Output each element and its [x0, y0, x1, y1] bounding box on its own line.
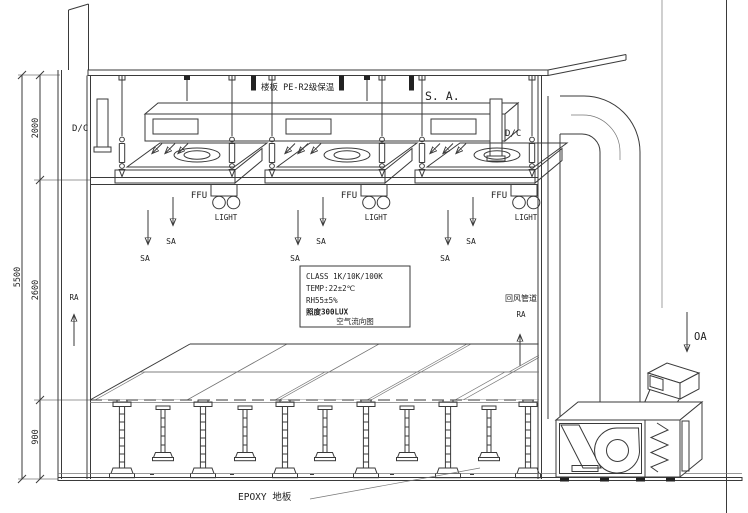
- return-air-right: 回风管道 RA: [505, 293, 537, 366]
- raised-floor: [90, 344, 597, 403]
- dc-label-right: D/C: [505, 129, 521, 139]
- light-label-3: LIGHT: [515, 213, 538, 222]
- spec-box: CLASS 1K/10K/100K TEMP:22±2℃ RH55±5% 照度3…: [300, 266, 410, 327]
- ffu-label-2: FFU: [341, 191, 357, 201]
- spec-line-lux: 照度300LUX: [306, 307, 349, 317]
- floor-pedestals: [110, 400, 541, 478]
- light-label-1: LIGHT: [215, 213, 238, 222]
- cleanroom-airflow-diagram: 5500 2000 2600 900 楼板 PE-R2级保温: [0, 0, 748, 513]
- ra-label-left: RA: [69, 293, 79, 302]
- dim-plenum-height: 2000: [31, 118, 41, 138]
- spec-line-rh: RH55±5%: [306, 296, 338, 305]
- sa-label-6: SA: [466, 237, 476, 246]
- return-shaft-and-elbow: [548, 96, 640, 419]
- supply-air-label: S. A.: [425, 89, 460, 103]
- sa-label-4: SA: [316, 237, 326, 246]
- dc-duct-left: D/C: [72, 99, 111, 152]
- cleanroom-airflow-diagram-page: 5500 2000 2600 900 楼板 PE-R2级保温: [0, 0, 748, 513]
- return-duct-label: 回风管道: [505, 293, 537, 303]
- sa-label-3: SA: [290, 254, 300, 263]
- ceiling-slab: 楼板 PE-R2级保温: [69, 4, 627, 93]
- light-label-2: LIGHT: [365, 213, 388, 222]
- supply-air-arrows: SA SA SA SA SA SA: [140, 197, 476, 263]
- return-air-left: RA: [69, 293, 79, 346]
- airflow-caption: 空气流向图: [336, 316, 374, 326]
- spec-line-temp: TEMP:22±2℃: [306, 284, 356, 293]
- sa-label-2: SA: [166, 237, 176, 246]
- ffu-label-1: FFU: [191, 191, 207, 201]
- sa-label-5: SA: [440, 254, 450, 263]
- ahu-unit: [556, 402, 702, 482]
- dim-room-height: 2600: [31, 280, 41, 300]
- dim-floor-height: 900: [31, 429, 41, 444]
- spec-line-class: CLASS 1K/10K/100K: [306, 272, 383, 281]
- ra-label-right: RA: [516, 310, 526, 319]
- ffu-label-3: FFU: [491, 191, 507, 201]
- dim-total-height: 5500: [13, 267, 23, 287]
- dc-label-left: D/C: [72, 124, 88, 134]
- sa-label-1: SA: [140, 254, 150, 263]
- epoxy-floor-label: EPOXY 地板: [238, 491, 292, 503]
- oa-label: OA: [694, 331, 707, 343]
